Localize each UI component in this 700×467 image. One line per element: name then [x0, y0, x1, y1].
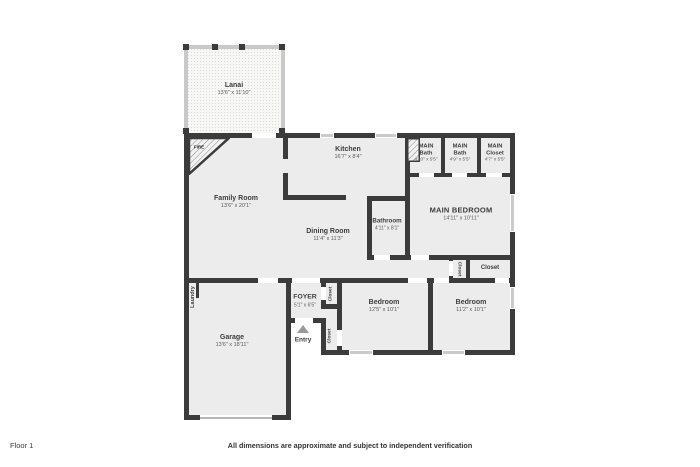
room-label-lanai: Lanai 13'6" x 11'10" — [218, 81, 251, 97]
room-label-bathroom: Bathroom 4'11" x 8'1" — [372, 218, 401, 233]
wall-laundry-stub — [196, 282, 199, 298]
room-label-hall-closet: Closet — [457, 262, 462, 277]
wall-bath-divider-1 — [441, 136, 445, 176]
door-opening-lanai — [252, 133, 276, 138]
window-main-bedroom — [510, 194, 515, 232]
wall-kitchen-counter — [283, 195, 346, 200]
room-label-garage: Garage 13'6" x 18'11" — [216, 333, 249, 349]
wall-closet-divider — [466, 255, 470, 282]
room-label-main-bedroom: MAIN BEDROOM 14'11" x 10'11" — [430, 206, 493, 223]
door-opening-garage — [258, 278, 278, 283]
floor-area-garage — [184, 282, 291, 420]
room-label-kitchen: Kitchen 16'7" x 8'4" — [334, 145, 361, 161]
door-opening-bedroom2-closet — [495, 278, 509, 283]
room-label-bedroom-1: Bedroom 12'5" x 10'1" — [369, 298, 400, 314]
lanai-post — [212, 44, 218, 50]
window-bedroom-1 — [349, 350, 373, 355]
room-label-dining-room: Dining Room 11'4" x 11'3" — [306, 227, 350, 243]
wall-garage-right — [286, 282, 291, 420]
entry-label: Entry — [295, 337, 312, 344]
wall-foyer-closet-bottom — [321, 304, 342, 309]
opening-foyer — [292, 278, 320, 283]
lanai-post — [239, 44, 245, 50]
lanai-wall-left — [184, 45, 188, 137]
garage-door-line — [200, 417, 272, 419]
room-label-family-room: Family Room 13'6" x 20'1" — [214, 194, 258, 210]
window-bedroom-2-side — [510, 287, 515, 309]
lanai-post — [183, 44, 189, 50]
room-label-foyer: FOYER 5'1" x 6'5" — [293, 293, 316, 308]
window-kitchen-1 — [320, 133, 334, 138]
floorplan-canvas: FIRE Entry Lanai 13'6" x 11'10" Family R… — [0, 0, 700, 467]
door-opening-bedroom-2 — [434, 278, 449, 283]
window-bedroom-2 — [442, 350, 465, 355]
lanai-wall-right — [281, 45, 285, 137]
room-label-main-bedroom-closet: Closet — [481, 265, 499, 273]
door-opening-main-bath-2 — [452, 173, 467, 177]
room-label-main-bath-1: MAIN Bath 4'10" x 5'5" — [414, 143, 437, 162]
door-opening-entry — [295, 318, 313, 323]
fireplace-icon — [188, 137, 230, 175]
door-opening-bedroom-1 — [408, 278, 427, 283]
door-opening-bathroom — [374, 255, 390, 260]
wall-bathroom-left — [367, 196, 372, 260]
wall-kitchen-family-a — [283, 133, 288, 159]
room-label-main-closet: MAIN Closet 4'7" x 5'5" — [485, 143, 506, 162]
wall-left — [184, 133, 189, 420]
door-opening-hall-closet — [449, 261, 453, 276]
lanai-wall-top — [184, 45, 285, 49]
window-kitchen-2 — [375, 133, 397, 138]
door-opening-main-bath-1 — [419, 173, 434, 177]
door-opening-foyer-closet — [321, 287, 326, 300]
wall-bedroom-divider — [428, 282, 433, 351]
floor-area-bedrooms — [322, 282, 515, 355]
room-label-bedroom1-closet: Closet — [328, 329, 333, 344]
door-opening-main-bedroom — [411, 255, 429, 260]
wall-bath-divider-2 — [477, 136, 481, 176]
entry-arrow-icon — [297, 325, 309, 333]
room-label-bedroom-2: Bedroom 11'2" x 10'1" — [456, 298, 487, 314]
room-label-fireplace: FIRE — [194, 145, 204, 150]
room-label-main-bath-2: MAIN Bath 4'9" x 5'5" — [450, 143, 471, 162]
door-opening-bedroom1-closet — [337, 330, 342, 346]
wall-top — [184, 133, 515, 138]
wall-bathroom-top — [367, 196, 410, 201]
disclaimer-text: All dimensions are approximate and subje… — [0, 441, 700, 450]
wall-kitchen-family-b — [283, 173, 288, 200]
door-opening-main-closet — [486, 173, 502, 177]
room-label-laundry: Laundry — [190, 286, 196, 308]
room-label-foyer-closet: Closet — [329, 287, 334, 302]
lanai-post — [279, 44, 285, 50]
